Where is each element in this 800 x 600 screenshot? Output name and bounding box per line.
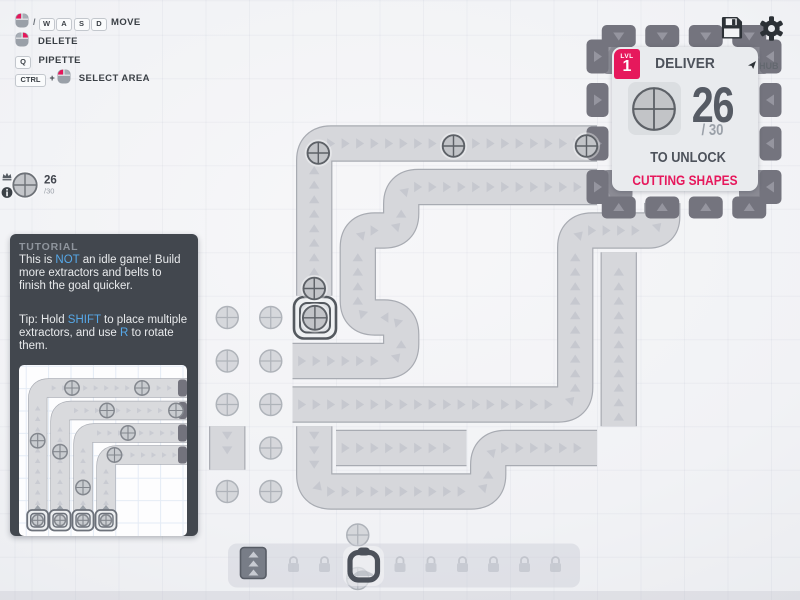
- svg-text:/30: /30: [44, 187, 54, 196]
- svg-text:26: 26: [44, 175, 57, 187]
